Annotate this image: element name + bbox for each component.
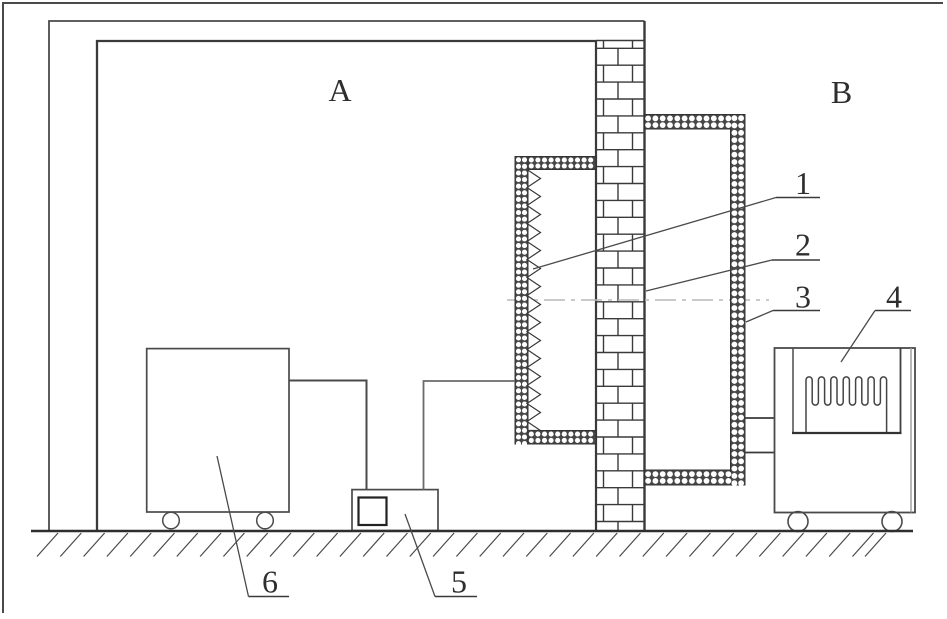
svg-text:4: 4: [886, 279, 902, 315]
svg-text:5: 5: [451, 564, 467, 600]
svg-text:B: B: [831, 74, 852, 110]
svg-text:1: 1: [795, 165, 811, 201]
svg-text:6: 6: [262, 564, 278, 600]
svg-text:2: 2: [795, 227, 811, 263]
svg-text:A: A: [328, 72, 351, 108]
svg-text:3: 3: [795, 279, 811, 315]
